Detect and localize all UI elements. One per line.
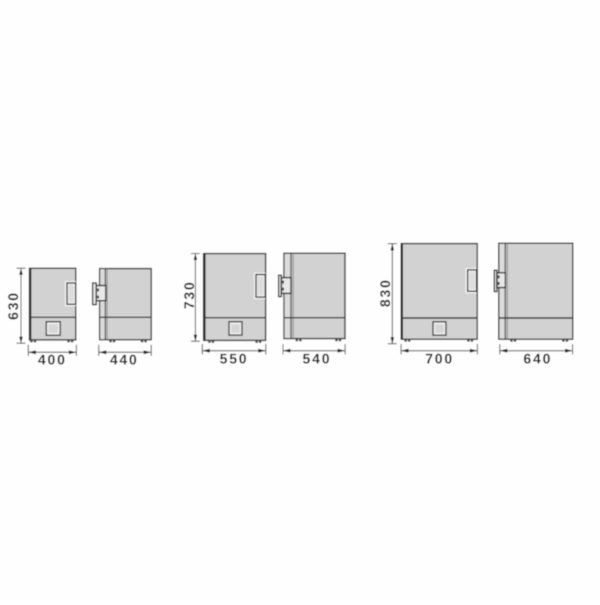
svg-text:440: 440: [110, 352, 139, 368]
svg-text:400: 400: [38, 352, 67, 368]
svg-text:630: 630: [5, 291, 21, 320]
svg-text:540: 540: [303, 351, 332, 367]
svg-text:640: 640: [523, 351, 552, 367]
svg-text:700: 700: [425, 351, 454, 367]
svg-text:730: 730: [181, 280, 197, 309]
svg-text:550: 550: [220, 351, 249, 367]
svg-text:830: 830: [377, 278, 393, 307]
